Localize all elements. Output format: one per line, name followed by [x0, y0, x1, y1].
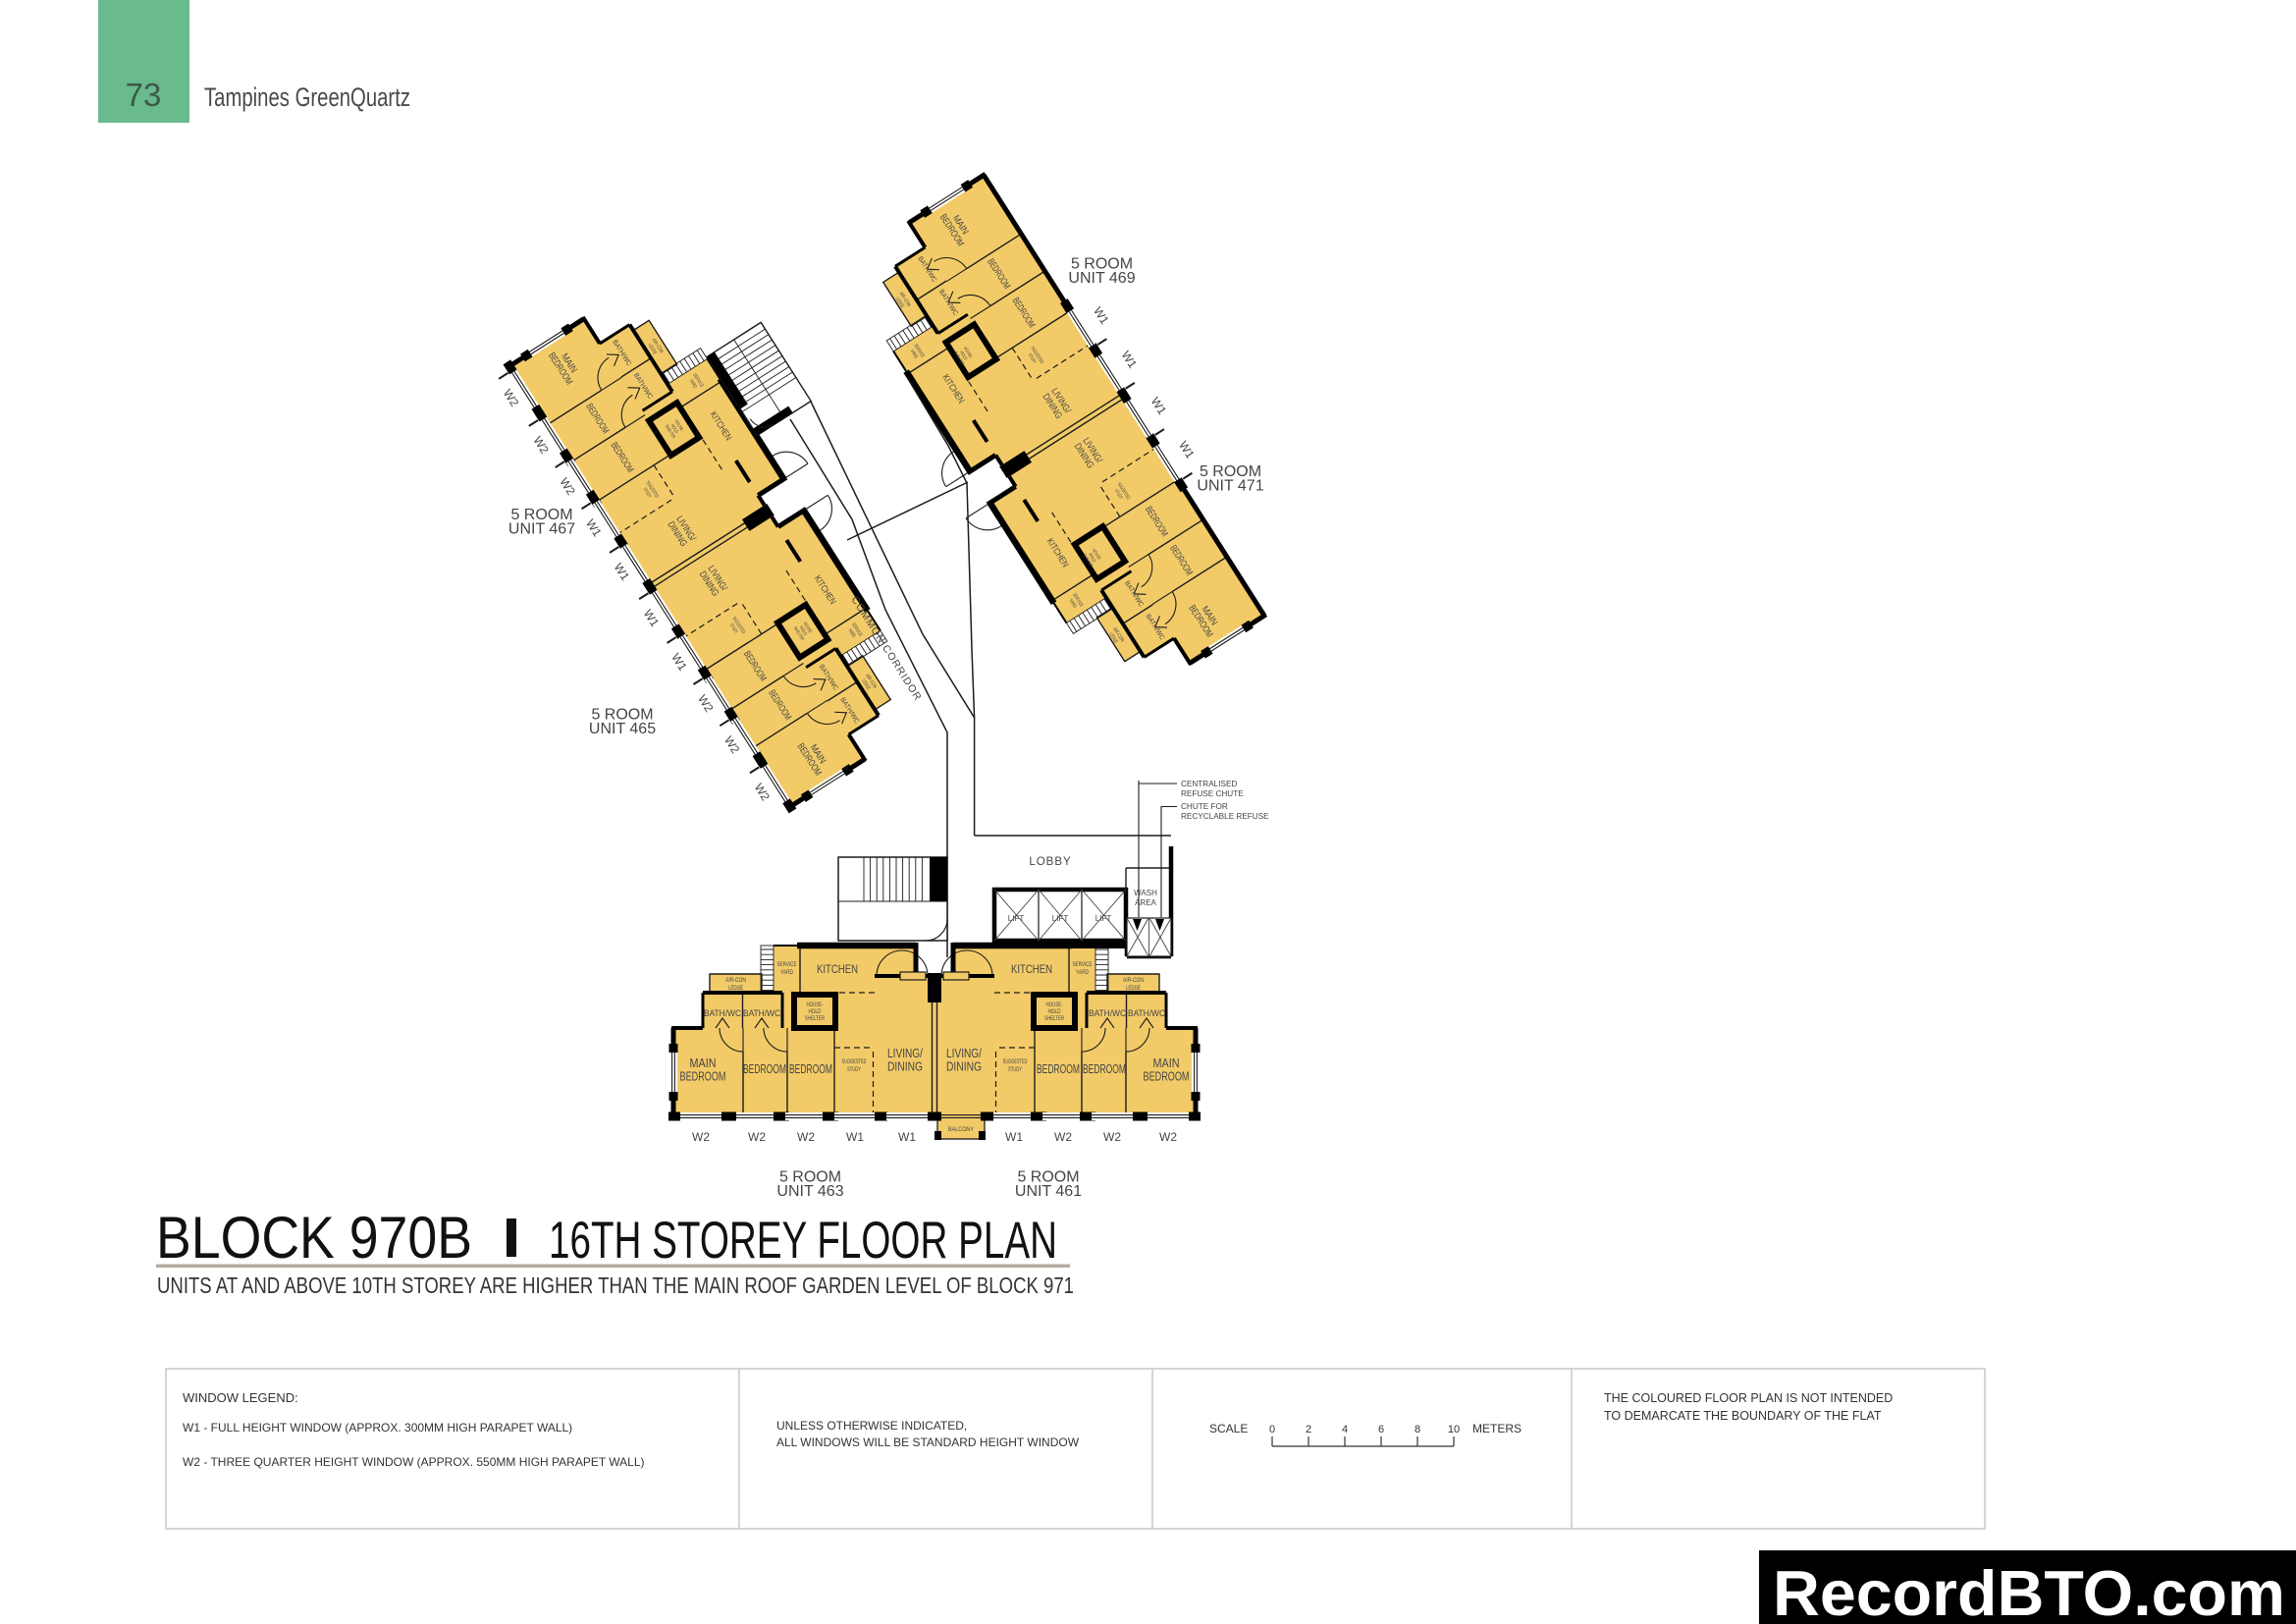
svg-text:METERS: METERS	[1472, 1422, 1522, 1435]
svg-text:BEDROOM: BEDROOM	[743, 1062, 786, 1076]
svg-text:0: 0	[1269, 1424, 1275, 1435]
svg-text:UNIT 471: UNIT 471	[1197, 478, 1263, 495]
svg-text:UNIT 463: UNIT 463	[776, 1183, 843, 1200]
svg-text:KITCHEN: KITCHEN	[817, 962, 858, 976]
svg-text:UNITS AT AND ABOVE 10TH STOREY: UNITS AT AND ABOVE 10TH STOREY ARE HIGHE…	[157, 1272, 1074, 1298]
svg-text:BATH/WC: BATH/WC	[743, 1008, 780, 1018]
svg-text:LIVING/DINING: LIVING/DINING	[946, 1047, 982, 1074]
svg-text:WASH: WASH	[1134, 889, 1157, 897]
svg-text:BEDROOM: BEDROOM	[1037, 1062, 1080, 1076]
svg-text:Tampines GreenQuartz: Tampines GreenQuartz	[204, 82, 410, 112]
svg-text:8: 8	[1415, 1424, 1420, 1435]
svg-text:UNIT 461: UNIT 461	[1015, 1183, 1082, 1200]
svg-text:LIFT: LIFT	[1008, 914, 1025, 923]
svg-text:BEDROOM: BEDROOM	[1083, 1062, 1126, 1076]
svg-text:10: 10	[1448, 1424, 1460, 1435]
svg-text:W2: W2	[797, 1130, 815, 1144]
svg-text:W1 - FULL HEIGHT WINDOW (APPR: W1 - FULL HEIGHT WINDOW (APPROX. 300MM H…	[183, 1421, 572, 1435]
svg-text:RecordBTO.com: RecordBTO.com	[1773, 1557, 2285, 1624]
svg-text:W2: W2	[1103, 1130, 1121, 1144]
svg-text:TO DEMARCATE THE BOUNDARY OF T: TO DEMARCATE THE BOUNDARY OF THE FLAT	[1604, 1409, 1882, 1423]
svg-text:73: 73	[126, 77, 162, 113]
svg-text:W2: W2	[1159, 1130, 1177, 1144]
svg-text:LIFT: LIFT	[1052, 914, 1069, 923]
svg-text:W2: W2	[692, 1130, 710, 1144]
svg-text:BATH/WC: BATH/WC	[1128, 1008, 1165, 1018]
svg-text:W1: W1	[898, 1130, 916, 1144]
svg-text:W2: W2	[1054, 1130, 1072, 1144]
svg-text:RECYCLABLE REFUSE: RECYCLABLE REFUSE	[1181, 812, 1269, 821]
svg-text:BLOCK 970B: BLOCK 970B	[156, 1205, 472, 1271]
svg-text:REFUSE CHUTE: REFUSE CHUTE	[1181, 789, 1244, 798]
svg-text:WINDOW LEGEND:: WINDOW LEGEND:	[183, 1390, 298, 1405]
svg-text:4: 4	[1342, 1424, 1348, 1435]
svg-text:UNIT 465: UNIT 465	[589, 721, 656, 737]
svg-text:UNIT 469: UNIT 469	[1068, 270, 1135, 287]
svg-text:2: 2	[1306, 1424, 1311, 1435]
svg-text:SCALE: SCALE	[1209, 1422, 1248, 1435]
svg-text:LIVING/DINING: LIVING/DINING	[887, 1047, 923, 1074]
svg-text:KITCHEN: KITCHEN	[1011, 962, 1052, 976]
svg-text:LOBBY: LOBBY	[1029, 856, 1071, 868]
svg-text:6: 6	[1378, 1424, 1384, 1435]
svg-text:ALL WINDOWS WILL BE STANDARD H: ALL WINDOWS WILL BE STANDARD HEIGHT WIND…	[776, 1435, 1080, 1449]
svg-text:W1: W1	[846, 1130, 864, 1144]
svg-text:BEDROOM: BEDROOM	[789, 1062, 832, 1076]
svg-text:CENTRALISED: CENTRALISED	[1181, 780, 1237, 788]
svg-text:16TH STOREY FLOOR PLAN: 16TH STOREY FLOOR PLAN	[549, 1212, 1057, 1270]
svg-text:UNLESS OTHERWISE INDICATED,: UNLESS OTHERWISE INDICATED,	[776, 1419, 967, 1433]
svg-text:W2 - THREE QUARTER HEIGHT WIN: W2 - THREE QUARTER HEIGHT WINDOW (APPROX…	[183, 1455, 645, 1469]
svg-text:BATH/WC: BATH/WC	[704, 1008, 741, 1018]
svg-text:BALCONY: BALCONY	[948, 1127, 974, 1133]
svg-text:W1: W1	[1005, 1130, 1023, 1144]
svg-text:LIFT: LIFT	[1095, 914, 1112, 923]
svg-text:THE COLOURED FLOOR PLAN IS NOT: THE COLOURED FLOOR PLAN IS NOT INTENDED	[1604, 1391, 1893, 1405]
svg-text:CHUTE FOR: CHUTE FOR	[1181, 802, 1228, 811]
svg-text:W2: W2	[748, 1130, 766, 1144]
svg-text:UNIT 467: UNIT 467	[508, 521, 575, 538]
svg-text:BATH/WC: BATH/WC	[1089, 1008, 1126, 1018]
